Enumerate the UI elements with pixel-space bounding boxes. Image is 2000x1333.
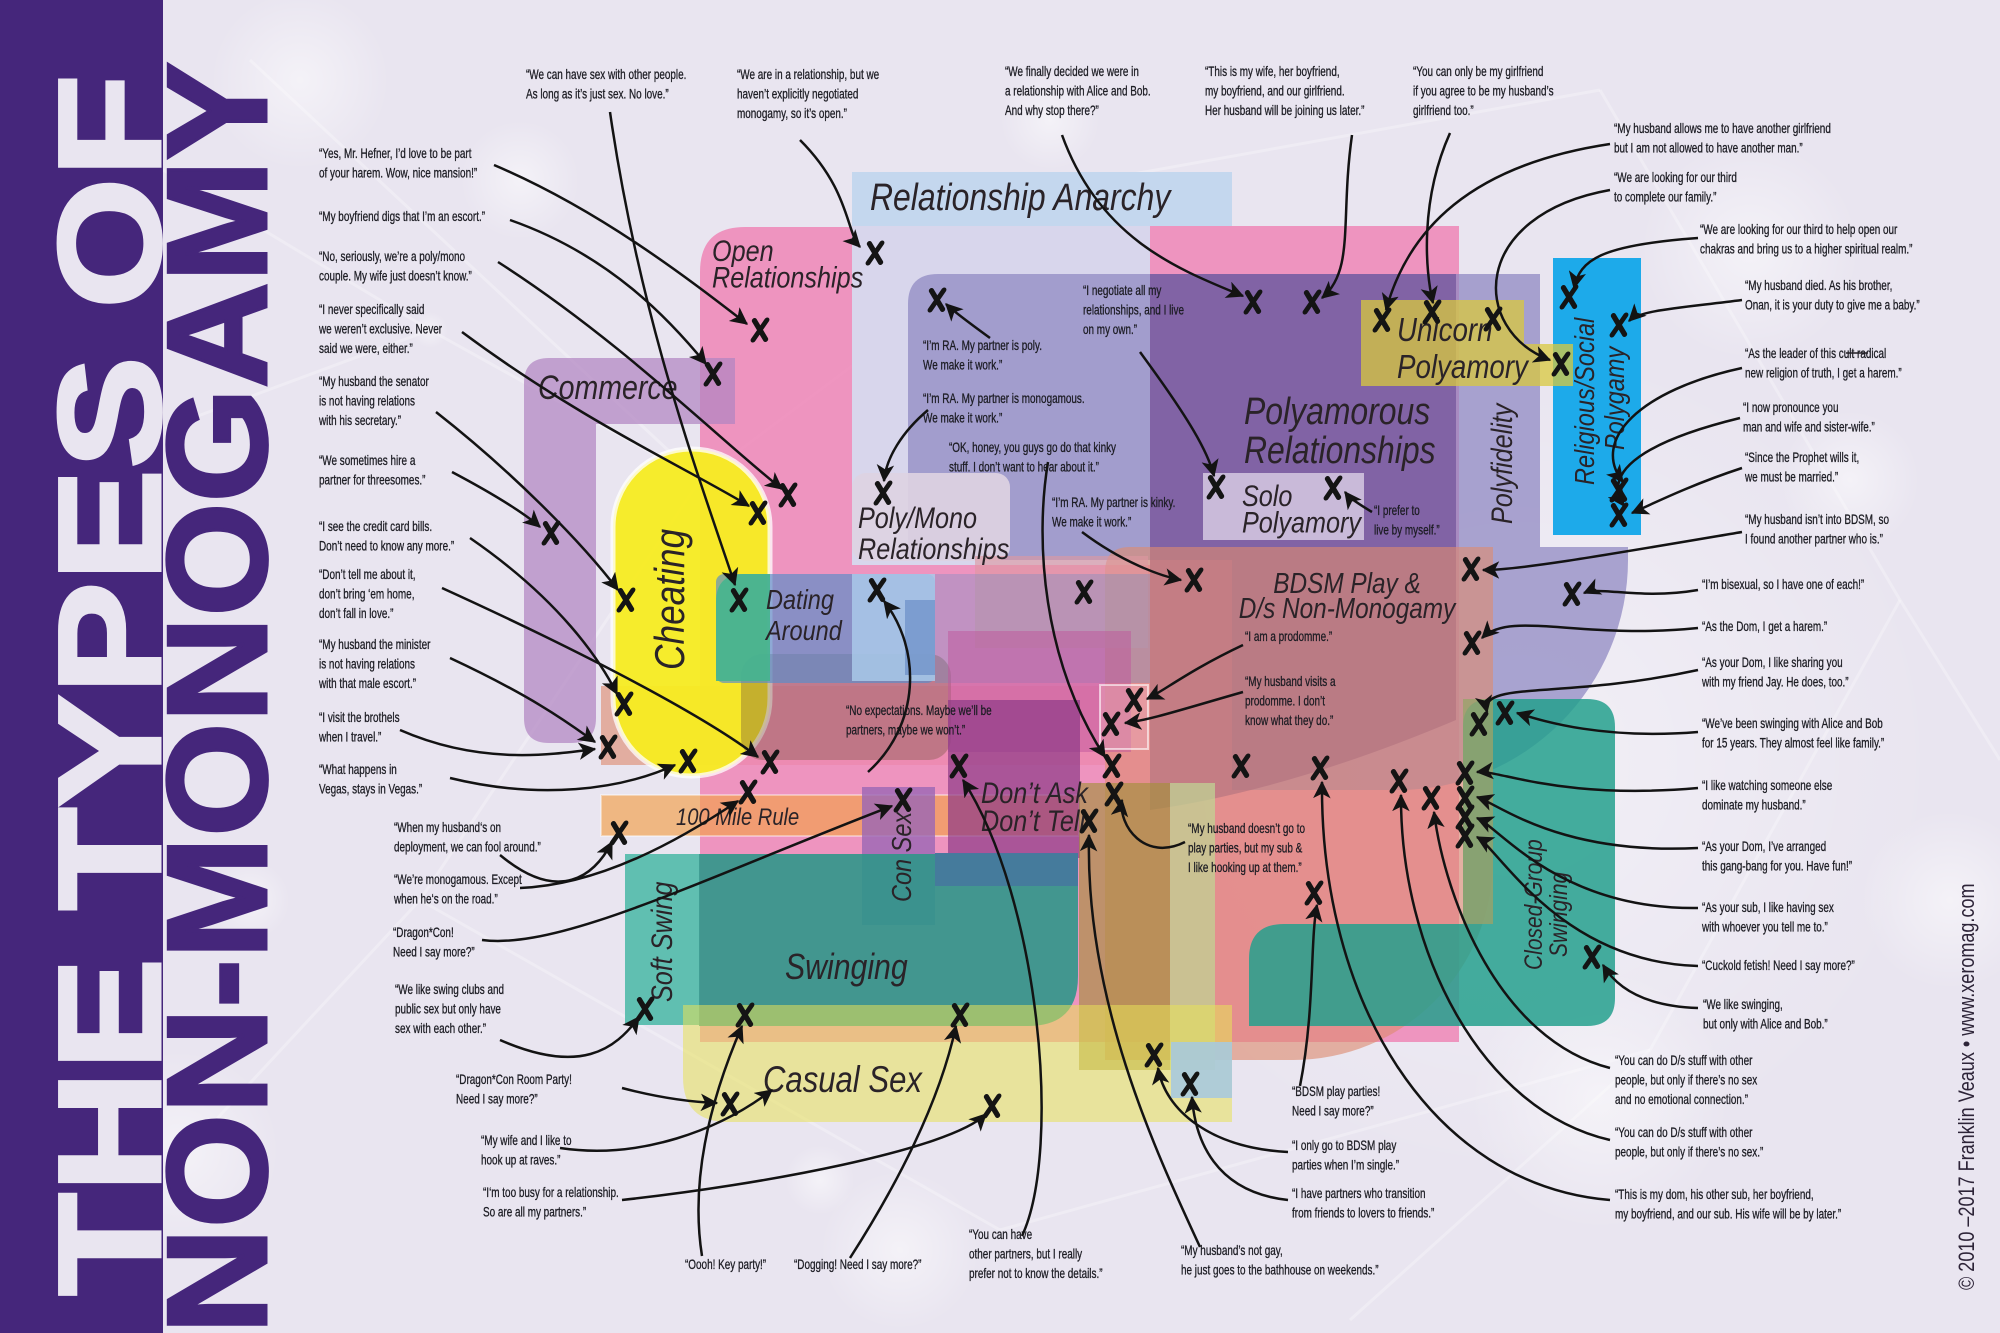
svg-text:Casual Sex: Casual Sex	[763, 1060, 924, 1101]
svg-text:“My husband the ministeris not: “My husband the ministeris not having re…	[318, 636, 430, 691]
svg-text:“I’m bisexual, so I have one o: “I’m bisexual, so I have one of each!”	[1702, 576, 1864, 592]
svg-text:“I am a prodomme.”: “I am a prodomme.”	[1245, 628, 1332, 644]
svg-text:Swinging: Swinging	[1544, 872, 1572, 957]
svg-text:Con Sex: Con Sex	[887, 811, 917, 902]
svg-text:Cheating: Cheating	[647, 528, 694, 670]
svg-text:Polyfidelity: Polyfidelity	[1485, 402, 1519, 524]
svg-text:“My husband visits aprodomme.: “My husband visits aprodomme. I don’tkno…	[1245, 673, 1336, 728]
svg-text:© 2010 –2017 Franklin Veaux •: © 2010 –2017 Franklin Veaux • www.xeroma…	[1955, 883, 1979, 1290]
svg-text:Swinging: Swinging	[785, 948, 908, 988]
svg-text:“Cuckold fetish! Need I say mo: “Cuckold fetish! Need I say more?”	[1702, 957, 1855, 973]
svg-text:Religious/Social: Religious/Social	[1570, 317, 1600, 485]
svg-text:“Dogging! Need I say more?”: “Dogging! Need I say more?”	[794, 1256, 921, 1272]
svg-text:Relationship Anarchy: Relationship Anarchy	[870, 176, 1173, 218]
svg-text:DatingAround: DatingAround	[764, 585, 843, 646]
svg-text:“As the Dom, I get a harem.”: “As the Dom, I get a harem.”	[1702, 618, 1827, 634]
svg-text:“My husband doesn’t go toplay: “My husband doesn’t go toplay parties, b…	[1188, 820, 1305, 875]
svg-text:NON-MONOGAMY: NON-MONOGAMY	[138, 62, 297, 1333]
svg-text:“My boyfriend digs that I’m an: “My boyfriend digs that I’m an escort.”	[319, 208, 485, 224]
svg-text:Polygamy: Polygamy	[1600, 345, 1630, 450]
svg-text:“Oooh! Key party!”: “Oooh! Key party!”	[685, 1256, 766, 1272]
svg-text:“You can do D/s stuff with oth: “You can do D/s stuff with otherpeople, …	[1615, 1052, 1757, 1107]
svg-text:PolyamorousRelationships: PolyamorousRelationships	[1244, 390, 1436, 471]
svg-text:Commerce: Commerce	[538, 369, 678, 407]
svg-text:100 Mile Rule: 100 Mile Rule	[676, 803, 799, 830]
svg-text:Don’t AskDon’t Tell: Don’t AskDon’t Tell	[981, 776, 1089, 838]
